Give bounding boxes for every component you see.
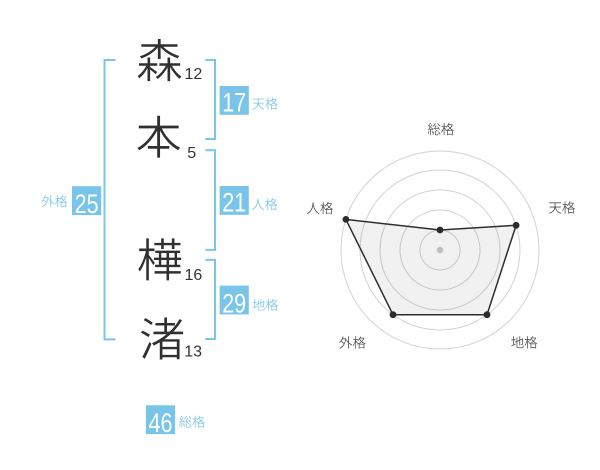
svg-text:25: 25 <box>75 189 99 219</box>
svg-text:12: 12 <box>185 66 203 83</box>
svg-text:29: 29 <box>222 288 246 318</box>
svg-text:16: 16 <box>185 267 203 284</box>
svg-text:46: 46 <box>149 408 173 438</box>
svg-text:5: 5 <box>187 145 196 162</box>
svg-text:17: 17 <box>222 88 246 118</box>
svg-text:21: 21 <box>222 188 246 218</box>
svg-text:13: 13 <box>184 343 202 360</box>
